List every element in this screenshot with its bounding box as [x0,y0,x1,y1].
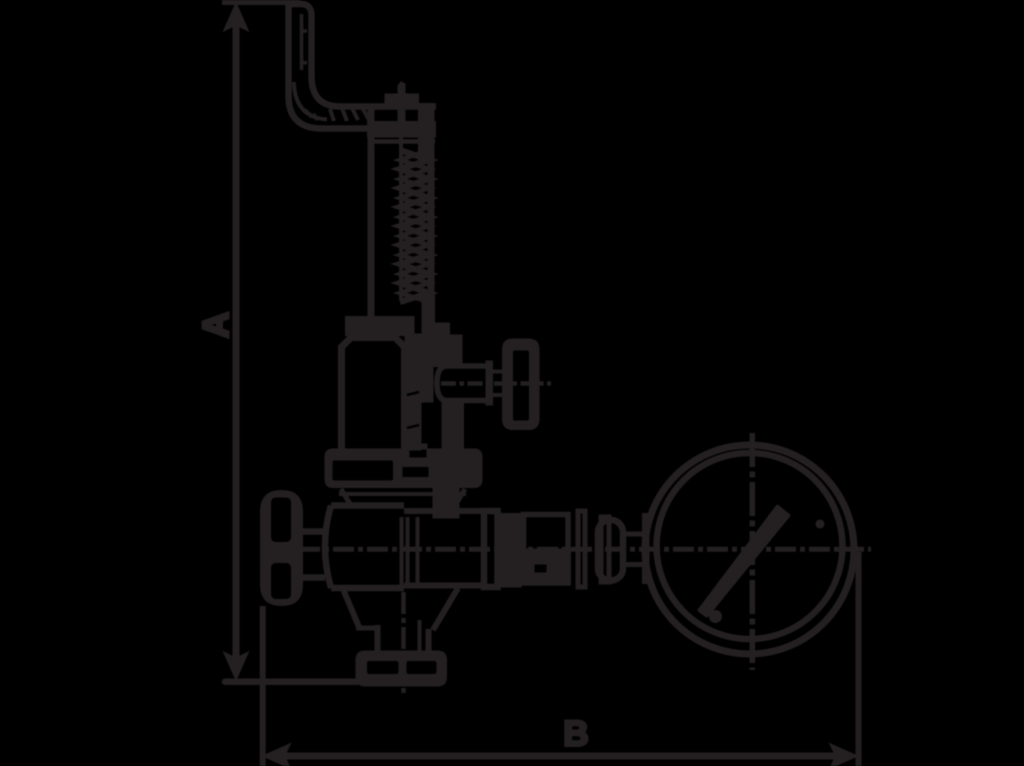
svg-text:A: A [195,312,236,338]
svg-text:B: B [563,715,588,754]
